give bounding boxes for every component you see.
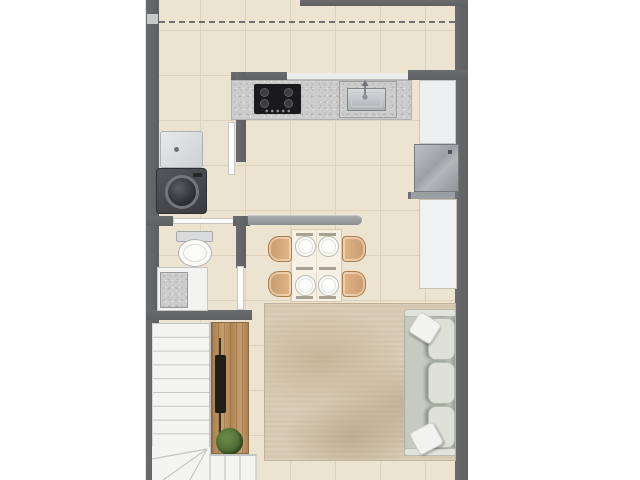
table-center-line	[316, 230, 317, 303]
placemat-shadow	[319, 296, 336, 299]
wall-bathroom-right	[236, 216, 246, 268]
staircase-winder-lines	[146, 440, 266, 480]
burner-icon	[284, 88, 293, 97]
counter-back-edge	[287, 73, 408, 80]
toilet-bowl	[178, 239, 212, 267]
plate-icon	[318, 275, 339, 296]
wall-stub-top-right	[408, 70, 468, 80]
vanity-sink	[160, 272, 188, 308]
laundry-door-leaf	[228, 122, 235, 175]
bathroom-top-door-leaf	[173, 218, 235, 224]
wall-top-partial	[300, 0, 468, 6]
plate-icon	[295, 236, 316, 257]
projection-dashed-line	[159, 21, 455, 23]
placemat-shadow	[296, 267, 313, 270]
faucet-icon	[358, 79, 372, 101]
cooktop	[254, 84, 301, 114]
tv-panel	[215, 355, 226, 413]
sofa-cushion	[428, 362, 455, 404]
washer-lid-icon	[165, 175, 199, 209]
side-counter	[419, 80, 456, 144]
half-wall-peninsula	[248, 215, 362, 225]
refrigerator	[414, 144, 459, 192]
burner-icon	[260, 88, 269, 97]
dining-chair	[268, 236, 292, 262]
wall-bathroom-top-left	[146, 216, 173, 226]
toilet-seat-line	[183, 244, 207, 262]
sofa-armrest-top	[404, 309, 456, 317]
bathroom-door-leaf	[237, 266, 244, 310]
washer-panel-icon	[193, 173, 202, 177]
counter-shelf-bar	[408, 192, 458, 199]
dining-chair	[342, 236, 366, 262]
wall-left-window-gap	[147, 14, 158, 24]
placemat-shadow	[296, 296, 313, 299]
laundry-tub	[160, 131, 203, 168]
floorplan-canvas	[0, 0, 640, 480]
plate-icon	[318, 236, 339, 257]
dining-chair	[342, 271, 366, 297]
cooktop-knobs-icon	[264, 109, 290, 113]
plate-icon	[295, 275, 316, 296]
tub-drain-icon	[174, 147, 179, 152]
staircase-straight-run	[152, 323, 209, 447]
burner-icon	[284, 99, 293, 108]
placemat-shadow	[319, 267, 336, 270]
lower-cabinet	[419, 199, 457, 289]
fridge-handle-icon	[448, 150, 452, 154]
washing-machine	[156, 168, 207, 214]
dining-chair	[268, 271, 292, 297]
burner-icon	[260, 99, 269, 108]
wall-bathroom-bottom	[146, 310, 252, 320]
